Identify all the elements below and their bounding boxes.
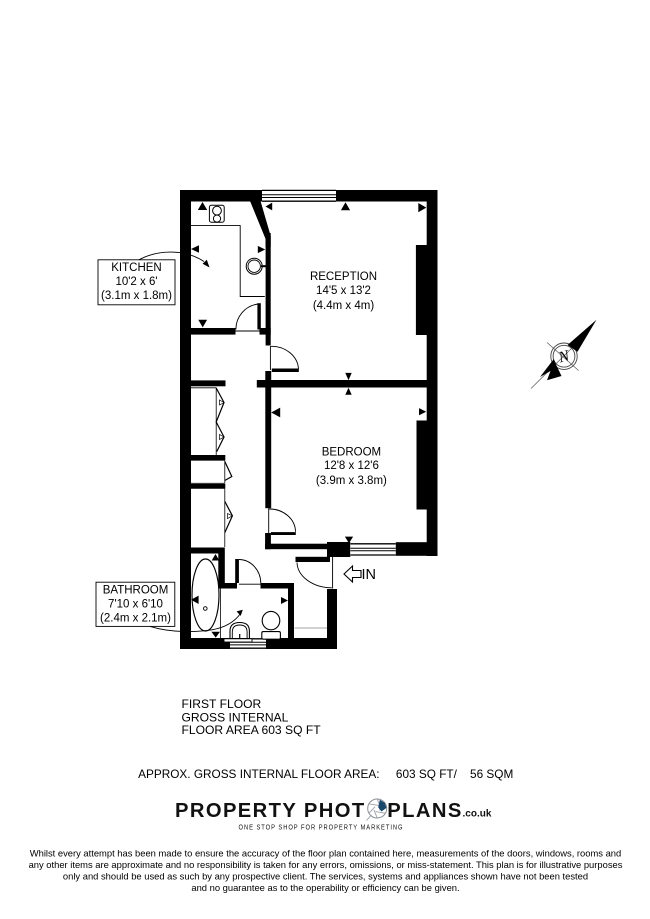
svg-text:.co.uk: .co.uk <box>463 809 492 820</box>
svg-text:Whilst every attempt has been: Whilst every attempt has been made to en… <box>30 848 621 859</box>
svg-text:ONE STOP SHOP FOR PROPERTY MAR: ONE STOP SHOP FOR PROPERTY MARKETING <box>239 822 404 831</box>
svg-text:(3.1m x 1.8m): (3.1m x 1.8m) <box>101 290 172 302</box>
svg-text:PLANS: PLANS <box>387 800 462 822</box>
svg-text:BEDROOM: BEDROOM <box>322 447 381 459</box>
svg-text:only and should be used as suc: only and should be used as such by any p… <box>63 871 588 882</box>
svg-text:(4.4m x 4m): (4.4m x 4m) <box>313 300 375 312</box>
svg-text:FLOOR AREA 603 SQ FT: FLOOR AREA 603 SQ FT <box>182 723 322 737</box>
svg-text:any other items are approximat: any other items are approximate and no r… <box>29 859 623 870</box>
svg-text:10'2 x 6': 10'2 x 6' <box>115 276 157 288</box>
svg-text:PROPERTY PHOT: PROPERTY PHOT <box>175 800 366 822</box>
svg-text:KITCHEN: KITCHEN <box>111 262 161 274</box>
svg-text:(3.9m x 3.8m): (3.9m x 3.8m) <box>316 475 387 487</box>
svg-text:FIRST FLOOR: FIRST FLOOR <box>182 697 262 711</box>
svg-text:(2.4m x 2.1m): (2.4m x 2.1m) <box>100 613 171 625</box>
svg-text:BATHROOM: BATHROOM <box>103 585 169 597</box>
svg-text:IN: IN <box>362 567 377 583</box>
svg-text:14'5 x 13'2: 14'5 x 13'2 <box>316 285 371 297</box>
svg-text:and no guarantee as to the ope: and no guarantee as to the operability o… <box>191 882 459 893</box>
svg-text:RECEPTION: RECEPTION <box>310 271 377 283</box>
svg-text:7'10 x 6'10: 7'10 x 6'10 <box>108 599 163 611</box>
svg-text:APPROX. GROSS INTERNAL FLOOR A: APPROX. GROSS INTERNAL FLOOR AREA: 603 S… <box>138 767 513 781</box>
svg-text:12'8 x 12'6: 12'8 x 12'6 <box>324 460 379 472</box>
